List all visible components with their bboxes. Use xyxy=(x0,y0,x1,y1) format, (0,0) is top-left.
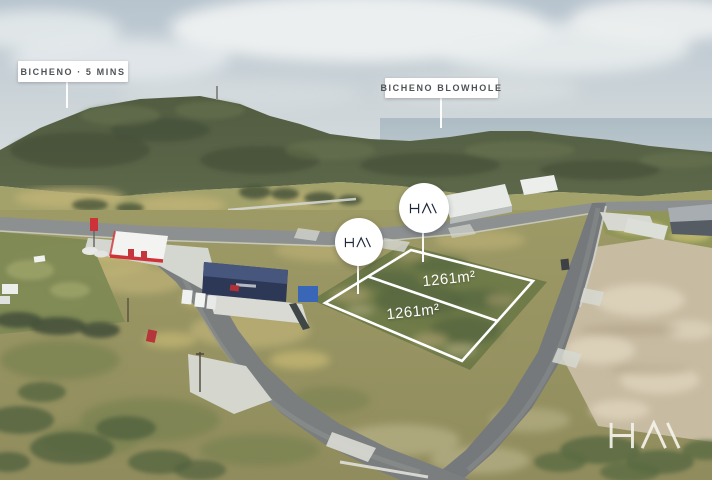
brand-marker-badge-left xyxy=(335,218,383,266)
fuel-station-canopy xyxy=(110,231,168,261)
dark-car xyxy=(560,259,569,271)
hilltop-antenna xyxy=(216,86,218,100)
brand-marker-badge-right xyxy=(399,183,449,233)
hm-logo-icon xyxy=(344,236,374,249)
badge-left-stem xyxy=(357,264,359,294)
label-bicheno-pointer-line xyxy=(66,82,68,108)
blue-container xyxy=(298,286,318,302)
fuel-price-sign xyxy=(90,218,98,231)
label-blowhole: BICHENO BLOWHOLE xyxy=(385,78,498,98)
label-blowhole-pointer-line xyxy=(440,98,442,128)
label-bicheno-distance: BICHENO · 5 MINS xyxy=(18,61,128,82)
aerial-listing-photo: BICHENO · 5 MINS BICHENO BLOWHOLE 1261m²… xyxy=(0,0,712,480)
label-blowhole-text: BICHENO BLOWHOLE xyxy=(380,83,502,93)
hm-logo-icon xyxy=(409,202,440,215)
label-bicheno-text: BICHENO · 5 MINS xyxy=(20,67,125,77)
hm-logo-icon xyxy=(607,419,689,452)
badge-right-stem xyxy=(422,231,424,262)
brand-watermark xyxy=(607,419,689,452)
